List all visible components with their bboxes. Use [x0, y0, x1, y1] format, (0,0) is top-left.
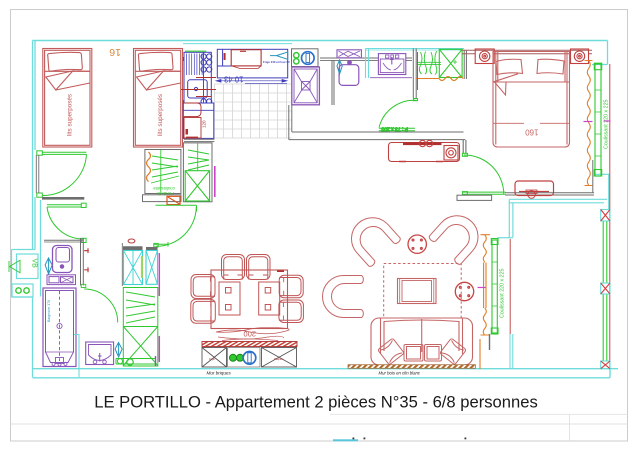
- svg-text:Coulissant 220 x 225: Coulissant 220 x 225: [604, 99, 610, 149]
- svg-text:P : 73 x 203: P : 73 x 203: [381, 125, 408, 131]
- svg-text:Coulissant 220 x 225: Coulissant 220 x 225: [500, 268, 506, 318]
- svg-text:120: 120: [201, 120, 206, 128]
- svg-text:Frigo: Frigo: [209, 357, 215, 361]
- svg-text:Baignoire 170: Baignoire 170: [47, 300, 51, 322]
- svg-text:200: 200: [243, 330, 256, 339]
- svg-text:10 43: 10 43: [224, 75, 244, 84]
- svg-text:lits superposés: lits superposés: [67, 94, 74, 136]
- svg-text:lits superposés: lits superposés: [157, 94, 164, 136]
- svg-text:VB: VB: [31, 259, 38, 269]
- svg-text:Plaques: Plaques: [274, 357, 284, 361]
- svg-text:160: 160: [525, 128, 539, 137]
- svg-text:Frigo 240 et Four 60: Frigo 240 et Four 60: [263, 60, 290, 64]
- svg-text:Mur briques: Mur briques: [207, 371, 232, 376]
- svg-text:Mur bois en clin blanc: Mur bois en clin blanc: [379, 371, 421, 376]
- svg-text:16: 16: [109, 46, 121, 58]
- svg-text:coulissante: coulissante: [152, 186, 175, 191]
- svg-text:LE PORTILLO - Appartement 2 pi: LE PORTILLO - Appartement 2 pièces N°35 …: [94, 393, 538, 412]
